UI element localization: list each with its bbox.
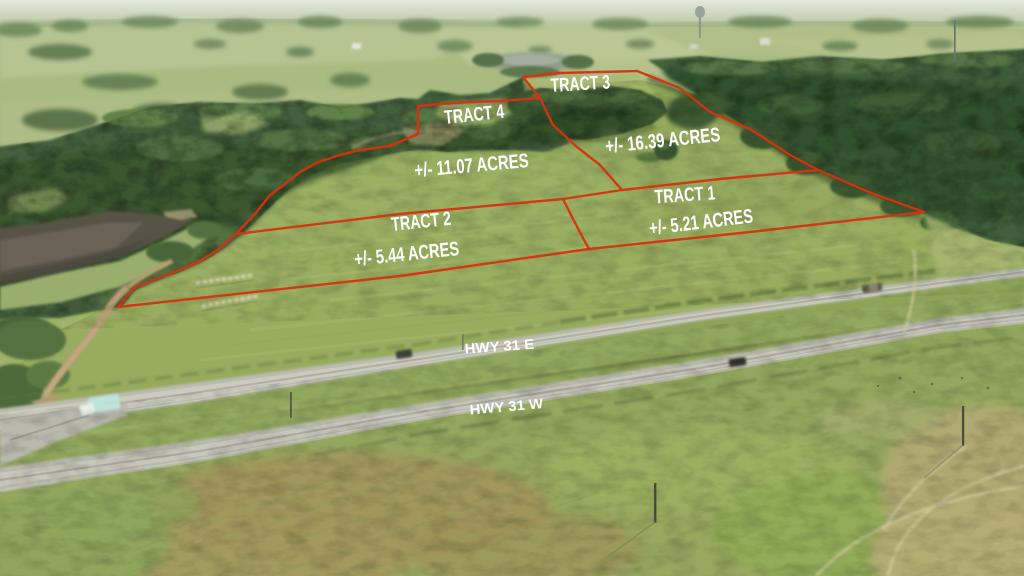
svg-text:TRACT 3: TRACT 3 [550,71,611,96]
svg-text:TRACT 1: TRACT 1 [654,181,717,208]
